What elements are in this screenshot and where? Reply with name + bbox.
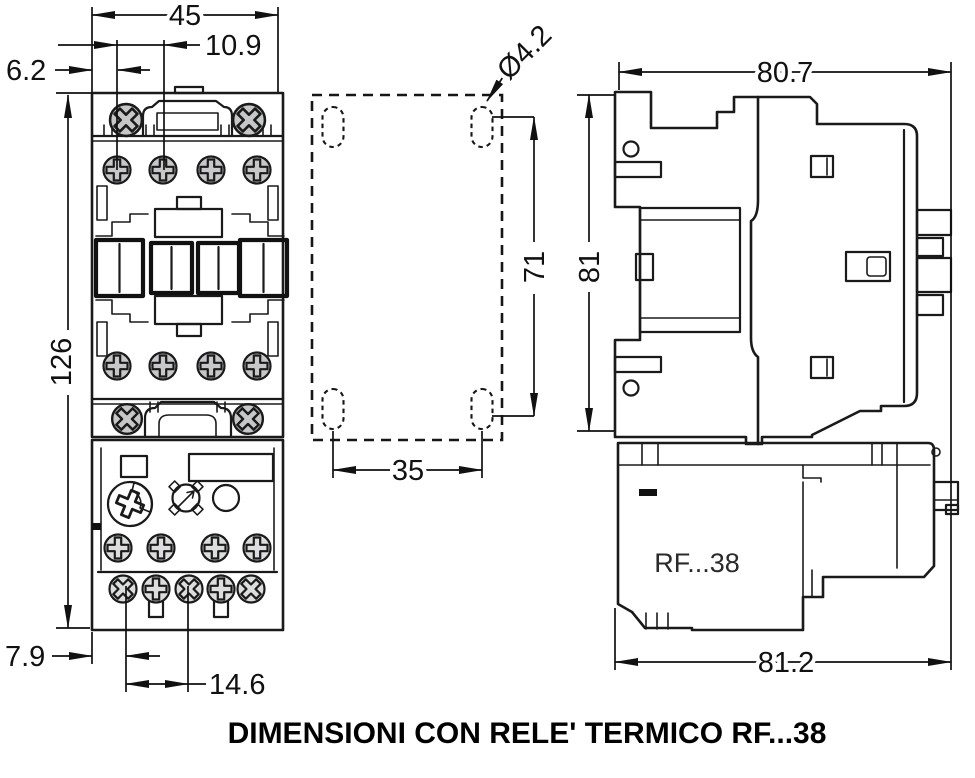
dim-front-overall-height: 126 [46, 93, 92, 628]
dim-front-bottom-edge-offset: 7.9 [5, 586, 160, 692]
relay-type-label: RF...38 [654, 548, 740, 578]
coil-terminal-screws-row [104, 157, 271, 184]
dim-label-14-6: 14.6 [209, 669, 265, 701]
dim-front-edge-offset: 6.2 [6, 55, 150, 87]
mounting-holes [323, 107, 493, 429]
drilling-plan: Ø4.2 71 35 [312, 19, 558, 487]
dim-label-81: 81 [574, 251, 606, 283]
dim-label-7-9: 7.9 [5, 641, 45, 673]
relay-side-notch [92, 523, 101, 530]
dim-label-hole-diameter: Ø4.2 [491, 19, 558, 86]
dimension-drawing-page: 45 10.9 6.2 126 7.9 [0, 0, 975, 778]
side-view: RF...38 80.7 [574, 57, 958, 679]
contactor-side-body [615, 92, 917, 444]
relay-label-window [189, 454, 273, 481]
drawing-caption: DIMENSIONI CON RELE' TERMICO RF...38 [228, 717, 827, 750]
contact-windows [96, 240, 287, 296]
dim-label-10-9: 10.9 [205, 30, 261, 62]
relay-screws-row [105, 535, 271, 562]
relay-side-body [618, 443, 934, 630]
relay-side-terminal [934, 482, 958, 514]
contactor-front-body [92, 93, 283, 437]
mounting-hole-bottom [624, 381, 639, 396]
dim-label-80-7: 80.7 [757, 57, 813, 89]
dim-hole-diameter: Ø4.2 [487, 19, 558, 101]
dim-front-bottom-terminal-pitch: 14.6 [126, 586, 265, 701]
dim-label-81-2: 81.2 [758, 647, 814, 679]
dim-label-45: 45 [169, 0, 201, 32]
test-button [121, 456, 147, 477]
dim-side-depth-bottom: 81.2 [615, 608, 951, 679]
stop-button [213, 485, 239, 511]
relay-slot-marker [639, 489, 657, 496]
mounting-hole-top [624, 142, 639, 157]
dim-label-35: 35 [392, 455, 424, 487]
load-terminal-screws-row [104, 353, 271, 380]
contactor-side-terminals [917, 210, 951, 315]
dim-label-71: 71 [519, 251, 551, 283]
dim-side-height: 81 [574, 95, 614, 431]
technical-drawing: 45 10.9 6.2 126 7.9 [0, 0, 975, 778]
front-view: 45 10.9 6.2 126 7.9 [5, 0, 287, 701]
current-adjust-dial [108, 482, 152, 526]
relay-bottom-terminals [104, 570, 270, 617]
reset-selector [169, 481, 203, 515]
dim-label-126: 126 [46, 338, 78, 386]
mounting-outline [312, 95, 502, 440]
dim-label-6-2: 6.2 [6, 55, 46, 87]
